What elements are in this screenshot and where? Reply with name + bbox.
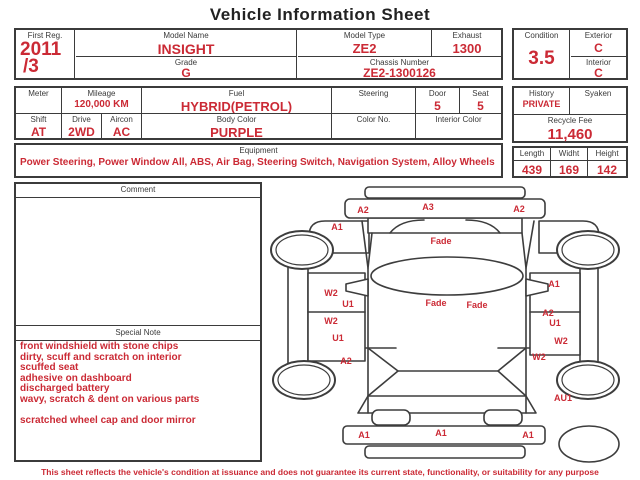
damage-mark-a2: A2: [542, 308, 554, 318]
first-reg-value: 2011 /3: [16, 41, 74, 75]
exterior-interior-cell: Exterior C Interior C: [571, 30, 626, 78]
damage-mark-u1: U1: [549, 318, 561, 328]
special-note-body: front windshield with stone chipsdirty, …: [16, 338, 260, 460]
mileage-value: 120,000 KM: [62, 99, 141, 110]
rear-bottom-strip: [365, 446, 525, 458]
special-note-line: wavy, scratch & dent on various parts: [20, 395, 256, 406]
damage-mark-a2: A2: [340, 356, 352, 366]
fuel-value: HYBRID(PETROL): [142, 99, 331, 114]
equipment-label: Equipment: [16, 145, 501, 156]
aircon-cell: Aircon AC: [102, 113, 142, 138]
left-taillight: [372, 410, 410, 425]
height-value: 142: [588, 163, 626, 177]
door-label: Door: [416, 88, 459, 99]
width-cell: Widht 169: [551, 148, 588, 176]
top-left-table: First Reg. 2011 /3 Model Name INSIGHT Gr…: [14, 28, 503, 80]
drive-cell: Drive 2WD: [62, 113, 102, 138]
shift-label: Shift: [16, 114, 61, 125]
page-title: Vehicle Information Sheet: [0, 5, 640, 25]
disclaimer-text: This sheet reflects the vehicle's condit…: [0, 467, 640, 477]
steering-cell: Steering: [332, 88, 416, 113]
steering-label: Steering: [332, 88, 415, 99]
recycle-fee-label: Recycle Fee: [514, 115, 626, 126]
height-cell: Height 142: [588, 148, 626, 176]
aircon-value: AC: [102, 125, 141, 139]
model-name-label: Model Name: [76, 30, 296, 41]
meter-cell: Meter: [16, 88, 62, 113]
syaken-label: Syaken: [570, 88, 626, 99]
fuel-cell: Fuel HYBRID(PETROL): [142, 88, 332, 113]
history-label: History: [514, 88, 569, 99]
condition-table: Condition 3.5 Exterior C Interior C: [512, 28, 628, 80]
exterior-value: C: [571, 41, 626, 55]
shift-cell: Shift AT: [16, 113, 62, 138]
model-name-value: INSIGHT: [76, 41, 296, 57]
special-note-line: front windshield with stone chips: [20, 342, 256, 353]
car-diagram: [262, 183, 634, 467]
chassis-number-cell: Chassis Number ZE2-1300126: [298, 56, 501, 78]
damage-mark-fade: Fade: [425, 298, 446, 308]
right-a-pillar-seam: [522, 221, 534, 268]
damage-mark-fade: Fade: [466, 300, 487, 310]
damage-mark-a1: A1: [358, 430, 370, 440]
exhaust-value: 1300: [433, 41, 501, 56]
spare-wheel: [559, 426, 619, 462]
mileage-label: Mileage: [62, 88, 141, 99]
grade-cell: Grade G: [76, 56, 296, 79]
color-no-cell: Color No.: [332, 113, 416, 138]
length-cell: Length 439: [514, 148, 551, 176]
middle-right-table: History PRIVATE Syaken Recycle Fee 11,46…: [512, 86, 628, 143]
dimensions-table: Length 439 Widht 169 Height 142: [512, 146, 628, 178]
model-grade-cell: Model Name INSIGHT Grade G: [76, 30, 297, 78]
mileage-cell: Mileage 120,000 KM: [62, 88, 142, 113]
drive-label: Drive: [62, 114, 101, 125]
syaken-cell: Syaken: [570, 88, 626, 114]
front-right-wheel: [557, 231, 619, 269]
interior-color-cell: Interior Color: [416, 113, 501, 138]
damage-mark-au1: AU1: [554, 393, 572, 403]
condition-cell: Condition 3.5: [514, 30, 570, 78]
interior-color-label: Interior Color: [416, 114, 501, 125]
door-cell: Door 5: [416, 88, 460, 113]
meter-label: Meter: [16, 88, 61, 99]
length-label: Length: [514, 148, 550, 161]
width-value: 169: [551, 163, 587, 177]
model-type-label: Model Type: [298, 30, 431, 41]
exhaust-label: Exhaust: [433, 30, 501, 41]
body-color-cell: Body Color PURPLE: [142, 113, 332, 138]
special-note-line: [20, 405, 256, 416]
grade-value: G: [76, 68, 296, 79]
vehicle-information-sheet: Vehicle Information Sheet First Reg. 201…: [0, 0, 640, 480]
interior-cell: Interior C: [571, 56, 626, 79]
history-cell: History PRIVATE: [514, 88, 570, 114]
width-label: Widht: [551, 148, 587, 161]
body-color-label: Body Color: [142, 114, 331, 125]
special-note-line: discharged battery: [20, 384, 256, 395]
exterior-label: Exterior: [571, 30, 626, 41]
door-value: 5: [416, 99, 459, 113]
recycle-fee-value: 11,460: [514, 126, 626, 143]
damage-mark-a1: A1: [331, 222, 343, 232]
seat-cell: Seat 5: [460, 88, 501, 113]
model-type-cell: Model Type ZE2: [298, 30, 432, 56]
damage-mark-w2: W2: [324, 316, 338, 326]
history-value: PRIVATE: [514, 99, 569, 109]
damage-mark-u1: U1: [342, 299, 354, 309]
damage-mark-fade: Fade: [430, 236, 451, 246]
damage-mark-a3: A3: [422, 202, 434, 212]
damage-mark-a1: A1: [522, 430, 534, 440]
comment-note-box: Comment Special Note front windshield wi…: [14, 182, 262, 462]
height-label: Height: [588, 148, 626, 161]
model-type-value: ZE2: [298, 41, 431, 56]
damage-mark-a1: A1: [548, 279, 560, 289]
chassis-number-value: ZE2-1300126: [298, 68, 501, 79]
middle-left-table: Meter Mileage 120,000 KM Fuel HYBRID(PET…: [14, 86, 503, 140]
model-name-cell: Model Name INSIGHT: [76, 30, 296, 56]
comment-body: [16, 196, 260, 325]
seat-value: 5: [460, 99, 501, 113]
interior-value: C: [571, 68, 626, 79]
rear-left-wheel: [273, 361, 335, 399]
damage-mark-a2: A2: [357, 205, 369, 215]
exterior-cell: Exterior C: [571, 30, 626, 56]
color-no-label: Color No.: [332, 114, 415, 125]
front-left-wheel: [271, 231, 333, 269]
front-top-strip: [365, 187, 525, 198]
damage-mark-u1: U1: [332, 333, 344, 343]
damage-mark-w2: W2: [324, 288, 338, 298]
windshield: [371, 257, 523, 295]
shift-value: AT: [16, 125, 61, 139]
c-pillar-diagonals: [368, 348, 526, 371]
damage-mark-a2: A2: [513, 204, 525, 214]
seat-label: Seat: [460, 88, 501, 99]
drive-value: 2WD: [62, 125, 101, 139]
condition-value: 3.5: [514, 48, 569, 70]
fuel-label: Fuel: [142, 88, 331, 99]
first-reg-cell: First Reg. 2011 /3: [16, 30, 75, 78]
damage-mark-w2: W2: [532, 352, 546, 362]
damage-mark-a1: A1: [435, 428, 447, 438]
body-color-value: PURPLE: [142, 125, 331, 140]
special-note-line: scuffed seat: [20, 363, 256, 374]
equipment-value: Power Steering, Power Window All, ABS, A…: [16, 156, 501, 169]
damage-mark-w2: W2: [554, 336, 568, 346]
equipment-box: Equipment Power Steering, Power Window A…: [14, 143, 503, 178]
length-value: 439: [514, 163, 550, 177]
recycle-fee-cell: Recycle Fee 11,460: [514, 114, 626, 141]
rear-window: [368, 371, 526, 396]
condition-label: Condition: [514, 30, 569, 41]
exhaust-cell: Exhaust 1300: [433, 30, 501, 56]
special-note-line: scratched wheel cap and door mirror: [20, 416, 256, 427]
aircon-label: Aircon: [102, 114, 141, 125]
right-taillight: [484, 410, 522, 425]
